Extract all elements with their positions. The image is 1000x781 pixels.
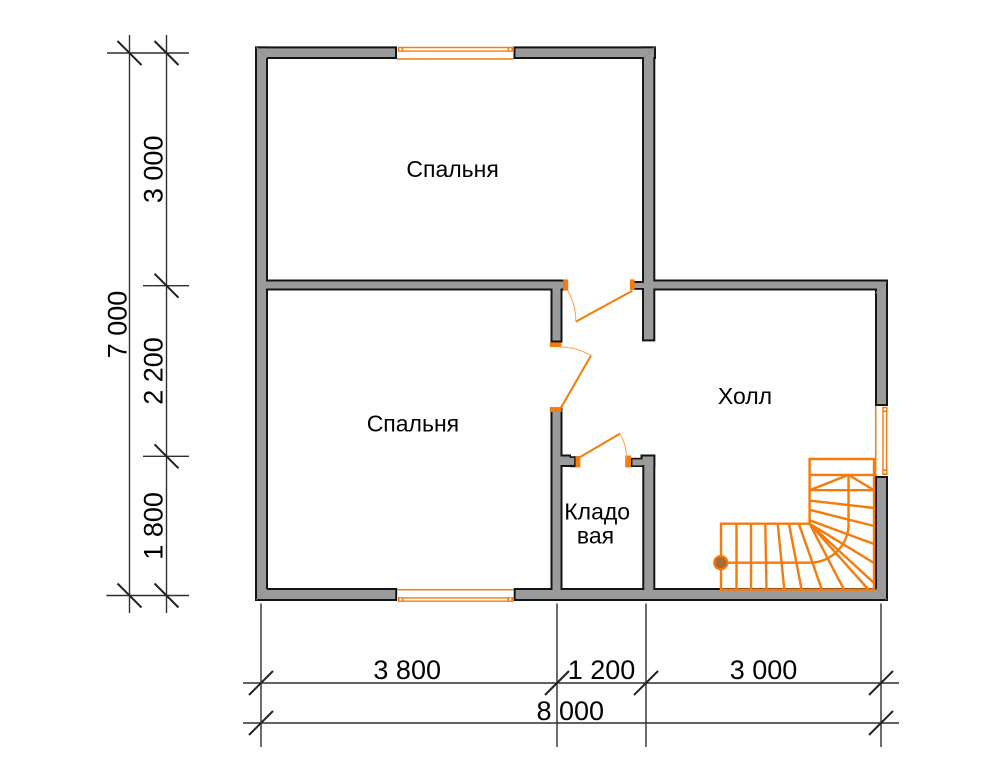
svg-text:3 800: 3 800 [373, 655, 441, 685]
svg-text:вая: вая [577, 523, 614, 549]
svg-text:8 000: 8 000 [537, 696, 605, 726]
svg-text:3 000: 3 000 [139, 136, 169, 204]
svg-text:Спальня: Спальня [367, 411, 459, 437]
svg-text:3 000: 3 000 [730, 655, 798, 685]
svg-text:Спальня: Спальня [406, 156, 498, 182]
svg-text:2 200: 2 200 [139, 337, 169, 405]
svg-text:1 200: 1 200 [568, 655, 636, 685]
svg-text:Кладо: Кладо [564, 499, 630, 525]
svg-text:7 000: 7 000 [103, 291, 133, 359]
svg-text:Холл: Холл [718, 383, 772, 409]
svg-text:1 800: 1 800 [139, 492, 169, 560]
